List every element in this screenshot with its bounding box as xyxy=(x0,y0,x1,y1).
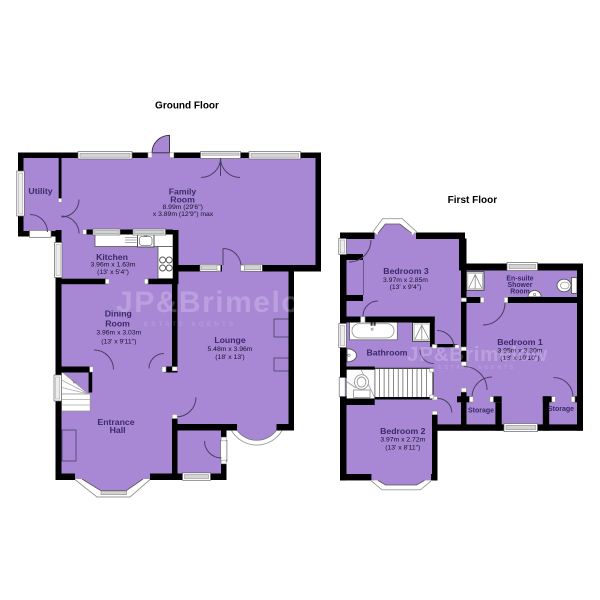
svg-text:3.96m x 1.63m: 3.96m x 1.63m xyxy=(91,261,136,268)
svg-text:Hall: Hall xyxy=(110,425,126,435)
svg-text:Bathroom: Bathroom xyxy=(366,348,407,358)
svg-text:JP&Brimelow: JP&Brimelow xyxy=(116,286,326,319)
svg-text:Storage: Storage xyxy=(468,408,494,415)
svg-text:3.97m x 2.85m: 3.97m x 2.85m xyxy=(383,277,428,284)
svg-text:3.96m x 3.03m: 3.96m x 3.03m xyxy=(96,330,141,337)
svg-text:5.48m x 3.96m: 5.48m x 3.96m xyxy=(208,346,253,353)
svg-text:ESTATE AGENTS: ESTATE AGENTS xyxy=(438,365,516,371)
svg-text:ESTATE AGENTS: ESTATE AGENTS xyxy=(144,321,236,328)
svg-text:(13' x 5'4"): (13' x 5'4") xyxy=(97,269,129,276)
svg-text:Bedroom 3: Bedroom 3 xyxy=(383,266,429,276)
svg-text:First Floor: First Floor xyxy=(448,195,498,206)
svg-text:(13' x 9'4"): (13' x 9'4") xyxy=(390,284,422,291)
svg-text:Room: Room xyxy=(105,319,130,329)
svg-text:(13' x 9'11"): (13' x 9'11") xyxy=(101,338,136,345)
svg-text:Storage: Storage xyxy=(548,406,574,413)
svg-text:Utility: Utility xyxy=(28,186,52,196)
svg-text:JP&Brimelow: JP&Brimelow xyxy=(407,343,548,366)
svg-text:(13' x 8'11"): (13' x 8'11") xyxy=(385,444,420,451)
svg-text:Ground Floor: Ground Floor xyxy=(155,101,219,112)
svg-text:x 3.89m (12'9") max: x 3.89m (12'9") max xyxy=(153,211,214,218)
svg-text:8.99m (29'6"): 8.99m (29'6") xyxy=(163,204,203,211)
svg-text:Bedroom 2: Bedroom 2 xyxy=(380,426,426,436)
svg-text:Room: Room xyxy=(510,288,530,295)
svg-text:Room: Room xyxy=(170,194,195,204)
svg-text:3.97m x 2.72m: 3.97m x 2.72m xyxy=(380,437,425,444)
svg-text:Lounge: Lounge xyxy=(214,335,246,345)
svg-text:(18' x 13'): (18' x 13') xyxy=(215,354,244,361)
